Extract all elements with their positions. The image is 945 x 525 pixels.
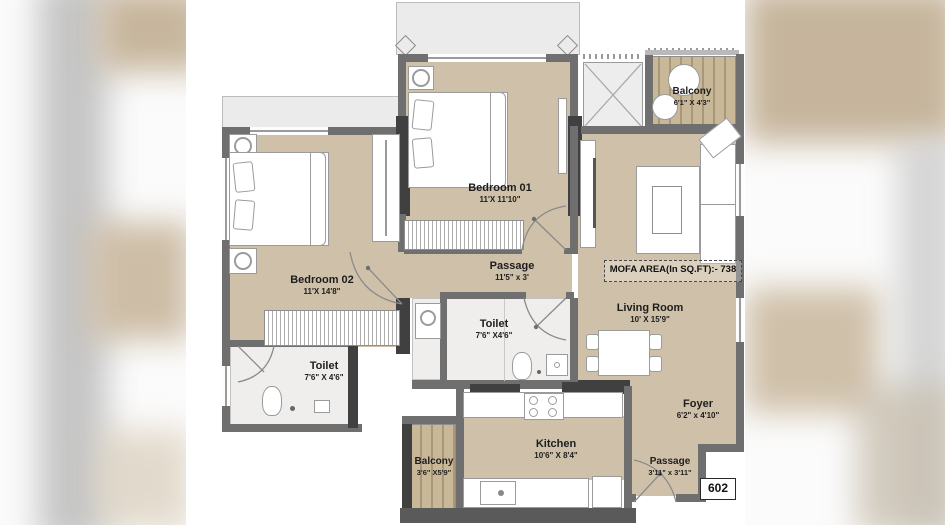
- bed02-blanket-fold: [310, 152, 326, 246]
- living-sofa-cushion-line: [700, 204, 736, 205]
- bed02-pillow-1: [232, 161, 255, 193]
- toilet-mid-tap-icon: [537, 370, 541, 374]
- kitchen-sink-tap-icon: [498, 490, 504, 496]
- bed02-pillow-2: [233, 199, 256, 231]
- living-tv-icon: [593, 158, 596, 228]
- bed02-wardrobe-side-line: [385, 140, 387, 236]
- label-balcony-bottom: Balcony 3'6" X5'9": [404, 456, 464, 477]
- label-balcony-top: Balcony 6'1" X 4'3": [644, 86, 740, 107]
- wall-kitchen-right: [624, 386, 632, 508]
- bedroom01-dims: 11'X 11'10": [440, 195, 560, 205]
- kitchen-fridge: [592, 476, 622, 508]
- dining-chair-4: [649, 356, 662, 372]
- bed01-wardrobe-hatch: [404, 220, 524, 250]
- balcony-bottom-name: Balcony: [404, 456, 464, 468]
- bg-blur-right-tan-top: [745, 0, 945, 143]
- wall-living-left-lower: [570, 298, 578, 388]
- window-toilet-left-wall-line: [225, 366, 227, 406]
- window-living-right-upper-line: [739, 164, 741, 216]
- living-room-name: Living Room: [590, 302, 710, 315]
- dining-chair-3: [649, 334, 662, 350]
- toilet-mid-name: Toilet: [446, 318, 542, 331]
- label-passage-entry: Passage 3'11" x 3'11": [622, 456, 718, 477]
- bed01-pillow-2: [412, 137, 435, 169]
- dining-chair-2: [586, 356, 599, 372]
- passage-entry-name: Passage: [622, 456, 718, 468]
- wall-shaft-bottom: [581, 126, 645, 134]
- washing-machine-drum-icon: [420, 310, 436, 326]
- passage-mid-dims: 11'5" x 3': [452, 273, 572, 283]
- window-bed02-top-line: [250, 130, 328, 132]
- bedroom02-name: Bedroom 02: [262, 274, 382, 287]
- shaft-tick-edge: [583, 54, 643, 59]
- wall-bed01-right-upper: [570, 54, 578, 118]
- duct-shaft: [583, 62, 643, 128]
- foyer-name: Foyer: [648, 398, 748, 411]
- label-foyer: Foyer 6'2" x 4'10": [648, 398, 748, 421]
- bedroom02-dims: 11'X 14'8": [262, 287, 382, 297]
- toilet-left-wc-icon: [262, 386, 282, 416]
- bedroom01-name: Bedroom 01: [440, 182, 560, 195]
- bedroom01-deck: [396, 2, 580, 55]
- wall-toilet-mid-top-left: [440, 292, 526, 299]
- bg-blur-left-tan-bottom: [96, 430, 191, 525]
- toilet-left-sink-icon: [314, 400, 330, 413]
- hob-burner-4-icon: [548, 408, 557, 417]
- label-living-room: Living Room 10' X 15'9": [590, 302, 710, 325]
- hob-burner-1-icon: [529, 396, 538, 405]
- foyer-dims: 6'2" x 4'10": [648, 411, 748, 421]
- label-toilet-mid: Toilet 7'6" X4'6": [446, 318, 542, 341]
- hob-burner-3-icon: [529, 408, 538, 417]
- wall-foyer-bottom-right: [698, 444, 744, 452]
- label-bedroom02: Bedroom 02 11'X 14'8": [262, 274, 382, 297]
- toilet-left-drain-icon: [290, 406, 295, 411]
- wall-entry-bottom-right: [676, 494, 702, 502]
- wall-entry-bottom-left: [624, 494, 636, 502]
- wall-right-outer: [736, 54, 744, 452]
- passage-mid-name: Passage: [452, 260, 572, 273]
- wall-toilet-left-bottom: [222, 424, 362, 432]
- label-kitchen: Kitchen 10'6" X 8'4": [496, 438, 616, 461]
- bed01-blanket-fold: [490, 92, 506, 188]
- living-room-dims: 10' X 15'9": [590, 315, 710, 325]
- bed01-pillow-1: [411, 99, 434, 131]
- bed02-wardrobe-hatch: [264, 310, 400, 346]
- unit-number-badge: 602: [700, 478, 736, 500]
- toilet-left-dims: 7'6" X 4'6": [276, 373, 372, 383]
- window-living-right-lower-line: [739, 298, 741, 342]
- dining-table: [598, 330, 650, 376]
- toilet-mid-dims: 7'6" X4'6": [446, 331, 542, 341]
- bg-blur-left-tan-mid: [88, 222, 192, 340]
- dining-chair-1: [586, 334, 599, 350]
- bedroom02-deck: [222, 96, 402, 130]
- passage-entry-dims: 3'11" x 3'11": [622, 468, 718, 477]
- toilet-left-name: Toilet: [276, 360, 372, 373]
- wall-balcony-top-top: [645, 50, 739, 55]
- mofa-area-box: MOFA AREA(In SQ.FT):- 738: [604, 260, 742, 282]
- window-bed01-top-line: [428, 57, 546, 59]
- living-coffee-table: [652, 186, 682, 234]
- wall-living-left-upper: [570, 126, 578, 254]
- window-bed02-left-line: [225, 158, 227, 240]
- bg-blur-right-tan-bottom: [856, 385, 945, 525]
- bed01-wall-shelf: [558, 98, 567, 174]
- kitchen-name: Kitchen: [496, 438, 616, 451]
- toilet-mid-drain-icon: [554, 362, 560, 368]
- label-bedroom01: Bedroom 01 11'X 11'10": [440, 182, 560, 205]
- toilet-mid-wc-icon: [512, 352, 532, 380]
- wall-toilet-left-right: [348, 340, 358, 428]
- balcony-top-dims: 6'1" X 4'3": [644, 98, 740, 107]
- bed02-lamp-bottom-icon: [234, 252, 252, 270]
- hob-burner-2-icon: [548, 396, 557, 405]
- wall-balcony-bottom-top: [402, 416, 464, 424]
- toilet-left-floor: [230, 346, 350, 426]
- label-toilet-left: Toilet 7'6" X 4'6": [276, 360, 372, 383]
- balcony-bottom-dims: 3'6" X5'9": [404, 468, 464, 477]
- kitchen-dims: 10'6" X 8'4": [496, 451, 616, 461]
- wall-plan-bottom-band: [400, 508, 636, 523]
- label-passage-mid: Passage 11'5" x 3': [452, 260, 572, 283]
- floorplan-canvas: MOFA AREA(In SQ.FT):- 738 602 Bedroom 01: [0, 0, 945, 525]
- wall-bed01-left-upper: [398, 54, 406, 118]
- bed01-lamp-icon: [412, 69, 430, 87]
- balcony-top-name: Balcony: [644, 86, 740, 98]
